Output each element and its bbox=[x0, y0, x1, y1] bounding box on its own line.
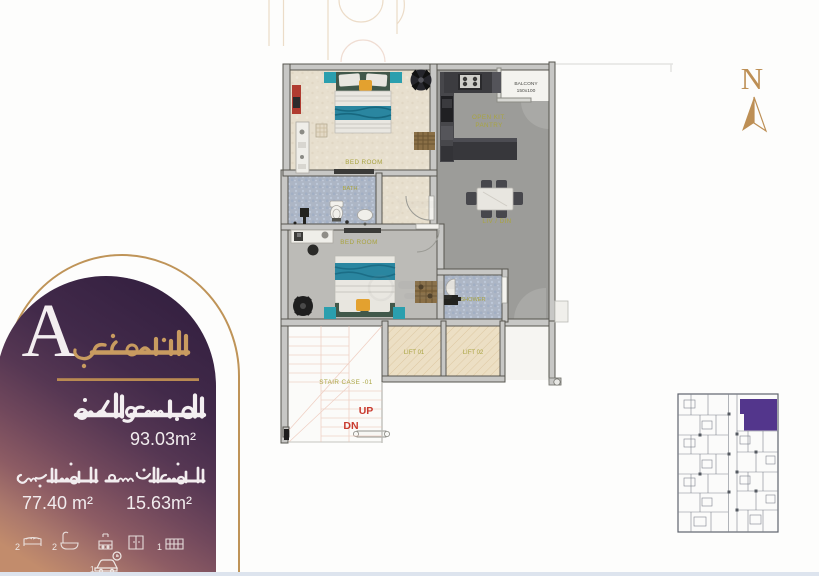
svg-text:PANTRY: PANTRY bbox=[475, 122, 503, 129]
svg-text:1: 1 bbox=[157, 542, 162, 552]
svg-text:LIV / DIN: LIV / DIN bbox=[482, 218, 511, 225]
svg-text:2: 2 bbox=[15, 542, 20, 552]
svg-text:LIFT 01: LIFT 01 bbox=[404, 350, 425, 356]
svg-text:BED ROOM: BED ROOM bbox=[340, 239, 378, 246]
svg-text:2: 2 bbox=[52, 542, 57, 552]
svg-text:77.40 m²: 77.40 m² bbox=[22, 493, 93, 513]
svg-text:N: N bbox=[741, 61, 763, 96]
svg-text:OPEN KIT.: OPEN KIT. bbox=[472, 114, 506, 121]
svg-text:LIFT 02: LIFT 02 bbox=[463, 350, 484, 356]
svg-text:A: A bbox=[22, 289, 77, 373]
svg-text:STAIR CASE -01: STAIR CASE -01 bbox=[319, 379, 373, 386]
svg-text:DN: DN bbox=[343, 420, 358, 432]
svg-text:93.03m²: 93.03m² bbox=[130, 429, 196, 449]
svg-text:15.63m²: 15.63m² bbox=[126, 493, 192, 513]
svg-text:BED ROOM: BED ROOM bbox=[345, 159, 383, 166]
svg-text:SHOWER: SHOWER bbox=[460, 297, 485, 303]
svg-text:150x100: 150x100 bbox=[517, 88, 536, 94]
svg-text:UP: UP bbox=[359, 405, 374, 417]
svg-text:BATH: BATH bbox=[342, 186, 357, 192]
svg-text:BALCONY: BALCONY bbox=[514, 81, 538, 87]
